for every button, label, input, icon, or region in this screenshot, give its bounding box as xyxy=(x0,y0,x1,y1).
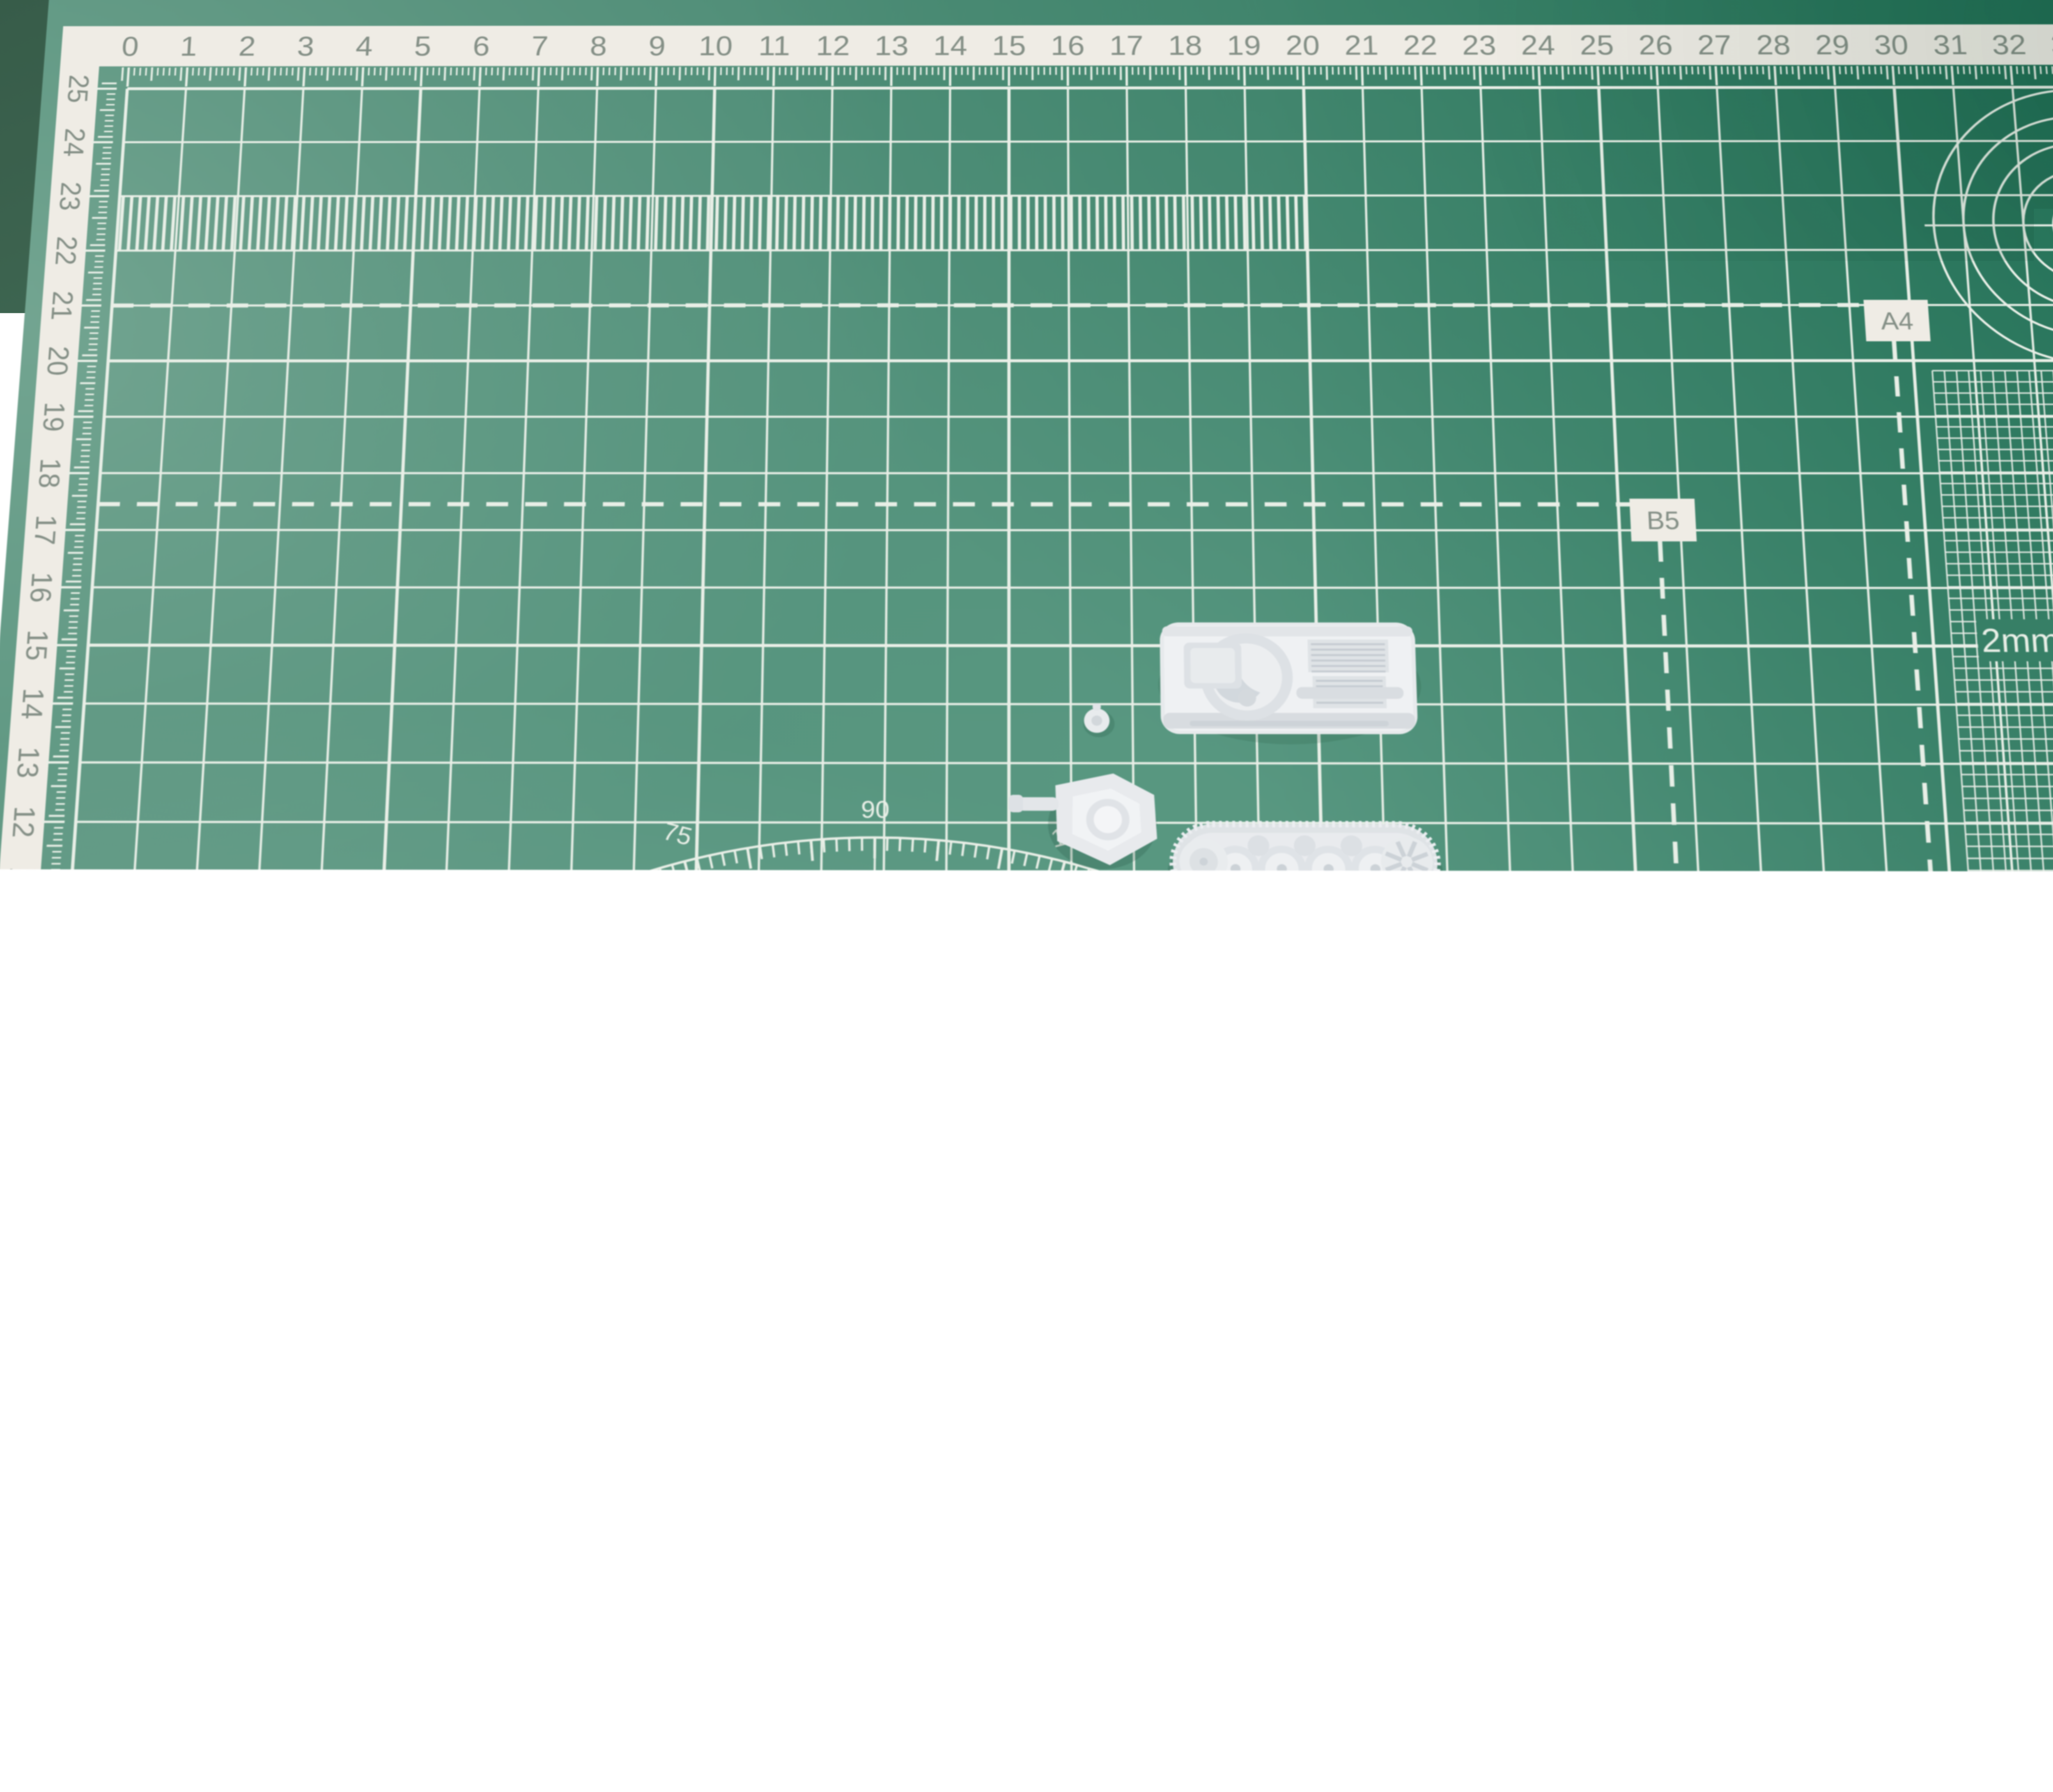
svg-text:14: 14 xyxy=(923,1677,962,1716)
svg-text:4: 4 xyxy=(355,30,374,61)
svg-text:A4: A4 xyxy=(1880,307,1914,335)
svg-text:8: 8 xyxy=(1805,1242,1819,1268)
svg-text:25: 25 xyxy=(1654,1679,1694,1718)
svg-text:11: 11 xyxy=(725,1676,762,1716)
svg-text:29: 29 xyxy=(1920,1679,1961,1719)
svg-text:25: 25 xyxy=(62,74,95,103)
svg-text:23: 23 xyxy=(53,182,87,211)
svg-text:16: 16 xyxy=(1056,1677,1095,1717)
svg-text:29: 29 xyxy=(1814,29,1850,60)
svg-text:9: 9 xyxy=(648,30,666,62)
svg-text:28: 28 xyxy=(1755,29,1791,60)
svg-text:1: 1 xyxy=(179,31,198,62)
svg-text:15: 15 xyxy=(990,1677,1028,1717)
svg-text:26: 26 xyxy=(1638,29,1674,60)
svg-text:19: 19 xyxy=(1226,30,1261,61)
svg-text:17: 17 xyxy=(1109,30,1144,61)
svg-text:32: 32 xyxy=(1991,29,2028,60)
svg-text:23: 23 xyxy=(1461,30,1497,61)
svg-text:0: 0 xyxy=(4,1674,25,1714)
svg-text:20: 20 xyxy=(1285,30,1320,61)
svg-text:24: 24 xyxy=(1520,30,1555,61)
svg-text:20: 20 xyxy=(1322,1678,1361,1718)
svg-text:28: 28 xyxy=(1854,1679,1895,1719)
svg-text:8: 8 xyxy=(534,1676,555,1716)
svg-text:3mm: 3mm xyxy=(2002,922,2053,961)
svg-text:18: 18 xyxy=(1189,1677,1228,1717)
svg-text:23: 23 xyxy=(1521,1678,1561,1718)
svg-text:18: 18 xyxy=(32,458,67,488)
svg-text:16: 16 xyxy=(1051,30,1085,61)
svg-text:10: 10 xyxy=(698,30,733,61)
svg-text:17: 17 xyxy=(28,515,63,545)
svg-text:22: 22 xyxy=(1455,1678,1495,1718)
svg-text:19: 19 xyxy=(1255,1678,1295,1718)
svg-text:13: 13 xyxy=(11,747,46,778)
svg-text:22: 22 xyxy=(49,236,83,265)
svg-text:3: 3 xyxy=(1825,1587,1839,1613)
svg-text:90: 90 xyxy=(860,867,889,896)
svg-text:13: 13 xyxy=(875,30,909,61)
svg-text:7: 7 xyxy=(0,1119,19,1135)
svg-text:5: 5 xyxy=(0,1245,10,1262)
svg-text:0: 0 xyxy=(121,31,140,62)
svg-text:24: 24 xyxy=(57,128,92,156)
svg-text:10: 10 xyxy=(0,926,33,958)
svg-text:18: 18 xyxy=(1168,30,1203,61)
svg-text:15: 15 xyxy=(992,30,1026,61)
svg-text:24: 24 xyxy=(1587,1679,1628,1718)
svg-text:21: 21 xyxy=(1344,30,1379,61)
svg-text:25: 25 xyxy=(1579,29,1614,60)
svg-text:12: 12 xyxy=(6,806,42,838)
svg-text:3: 3 xyxy=(296,30,315,61)
svg-text:6: 6 xyxy=(401,1675,422,1715)
svg-text:30: 30 xyxy=(1873,29,1909,60)
svg-text:5: 5 xyxy=(335,1675,356,1715)
svg-text:6: 6 xyxy=(0,1181,15,1198)
svg-text:3: 3 xyxy=(202,1675,224,1714)
svg-text:26: 26 xyxy=(1721,1679,1761,1719)
svg-text:5: 5 xyxy=(1816,1447,1831,1473)
svg-text:14: 14 xyxy=(15,688,51,719)
svg-text:9: 9 xyxy=(0,995,28,1011)
svg-text:6: 6 xyxy=(472,30,490,61)
svg-text:12: 12 xyxy=(816,30,850,61)
svg-text:21: 21 xyxy=(1388,1678,1428,1718)
svg-text:2: 2 xyxy=(136,1675,158,1714)
svg-text:1: 1 xyxy=(70,1674,92,1714)
svg-text:7: 7 xyxy=(1809,1310,1823,1335)
svg-text:17: 17 xyxy=(1123,1677,1162,1717)
svg-text:0: 0 xyxy=(1579,1575,1611,1591)
svg-text:4: 4 xyxy=(269,1675,290,1715)
svg-text:21: 21 xyxy=(45,291,80,320)
svg-text:27: 27 xyxy=(1787,1679,1828,1719)
svg-text:8: 8 xyxy=(590,30,608,62)
svg-text:4: 4 xyxy=(1821,1516,1835,1543)
svg-text:B5: B5 xyxy=(1646,506,1680,535)
svg-text:10: 10 xyxy=(1791,1109,1818,1134)
svg-text:10: 10 xyxy=(657,1676,697,1716)
svg-text:27: 27 xyxy=(1697,29,1732,60)
svg-text:22: 22 xyxy=(1403,30,1438,61)
svg-text:8: 8 xyxy=(0,1057,24,1073)
svg-text:7: 7 xyxy=(468,1675,488,1715)
svg-text:15: 15 xyxy=(19,629,55,661)
svg-text:13: 13 xyxy=(857,1677,895,1716)
svg-text:2mm: 2mm xyxy=(1980,622,2053,659)
svg-text:20: 20 xyxy=(41,346,76,376)
svg-text:90: 90 xyxy=(861,795,889,823)
svg-text:9: 9 xyxy=(600,1676,620,1716)
svg-text:180: 180 xyxy=(1658,1560,1691,1606)
svg-text:12: 12 xyxy=(790,1676,829,1716)
svg-text:4mm: 4mm xyxy=(2029,1282,2053,1323)
svg-text:11: 11 xyxy=(758,30,791,61)
svg-text:31: 31 xyxy=(1932,29,1968,60)
svg-text:5: 5 xyxy=(413,30,432,61)
svg-text:14: 14 xyxy=(933,30,967,61)
svg-text:7: 7 xyxy=(531,30,549,62)
svg-text:6: 6 xyxy=(1812,1378,1827,1404)
svg-text:2: 2 xyxy=(238,30,257,61)
svg-text:16: 16 xyxy=(24,572,59,603)
svg-text:11: 11 xyxy=(2,867,37,897)
svg-text:9: 9 xyxy=(1801,1175,1815,1201)
svg-text:30: 30 xyxy=(1987,1680,2028,1720)
svg-text:19: 19 xyxy=(37,402,71,432)
